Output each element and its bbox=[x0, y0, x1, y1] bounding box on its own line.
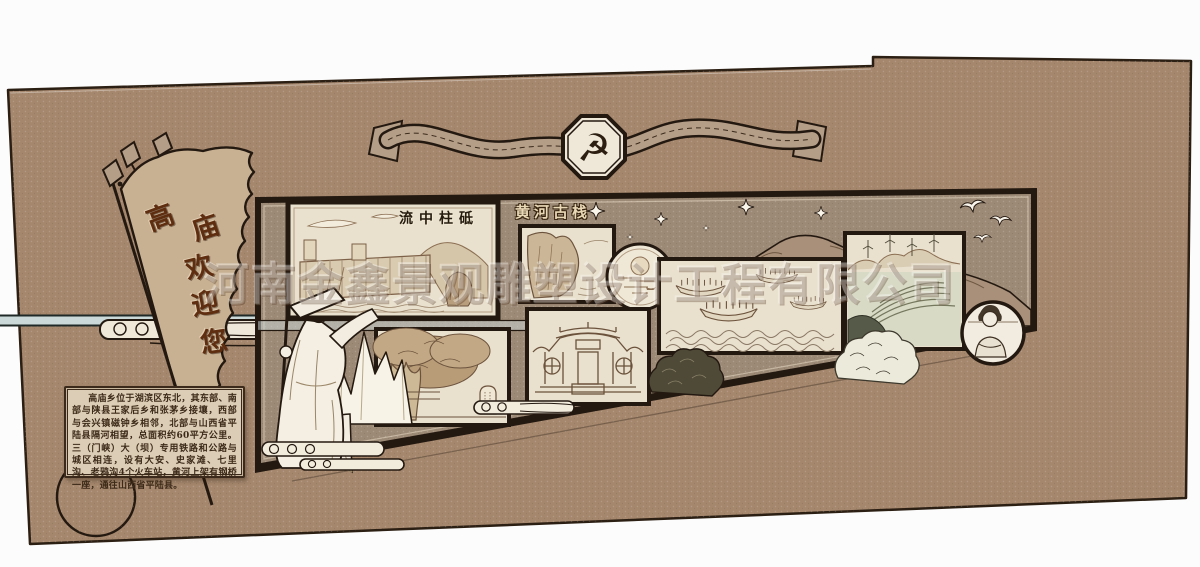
panel-terraces bbox=[845, 233, 964, 349]
hammer-sickle-icon: ☭ bbox=[573, 125, 615, 171]
panel-temple bbox=[527, 309, 649, 404]
info-plaque: 高庙乡位于湖滨区东北，其东部、南部与陕县王家后乡和张茅乡接壤，西部与会兴镇磁钟乡… bbox=[64, 386, 245, 478]
cultural-wall-rendering: ☭ 高 庙 欢 迎 您 流中柱砥 黄河古栈 高庙乡位于湖滨区东北，其东部、南部与… bbox=[0, 0, 1200, 567]
portrait-medallion bbox=[962, 302, 1024, 364]
flag-char-nin: 您 bbox=[197, 318, 229, 360]
panel-title-dam: 流中柱砥 bbox=[399, 208, 499, 228]
info-plaque-text: 高庙乡位于湖滨区东北，其东部、南部与陕县王家后乡和张茅乡接壤，西部与会兴镇磁钟乡… bbox=[72, 393, 237, 492]
panel-title-cliff: 黄河古栈 bbox=[515, 201, 615, 222]
panel-cliff bbox=[520, 226, 614, 302]
panel-boats bbox=[659, 259, 843, 353]
